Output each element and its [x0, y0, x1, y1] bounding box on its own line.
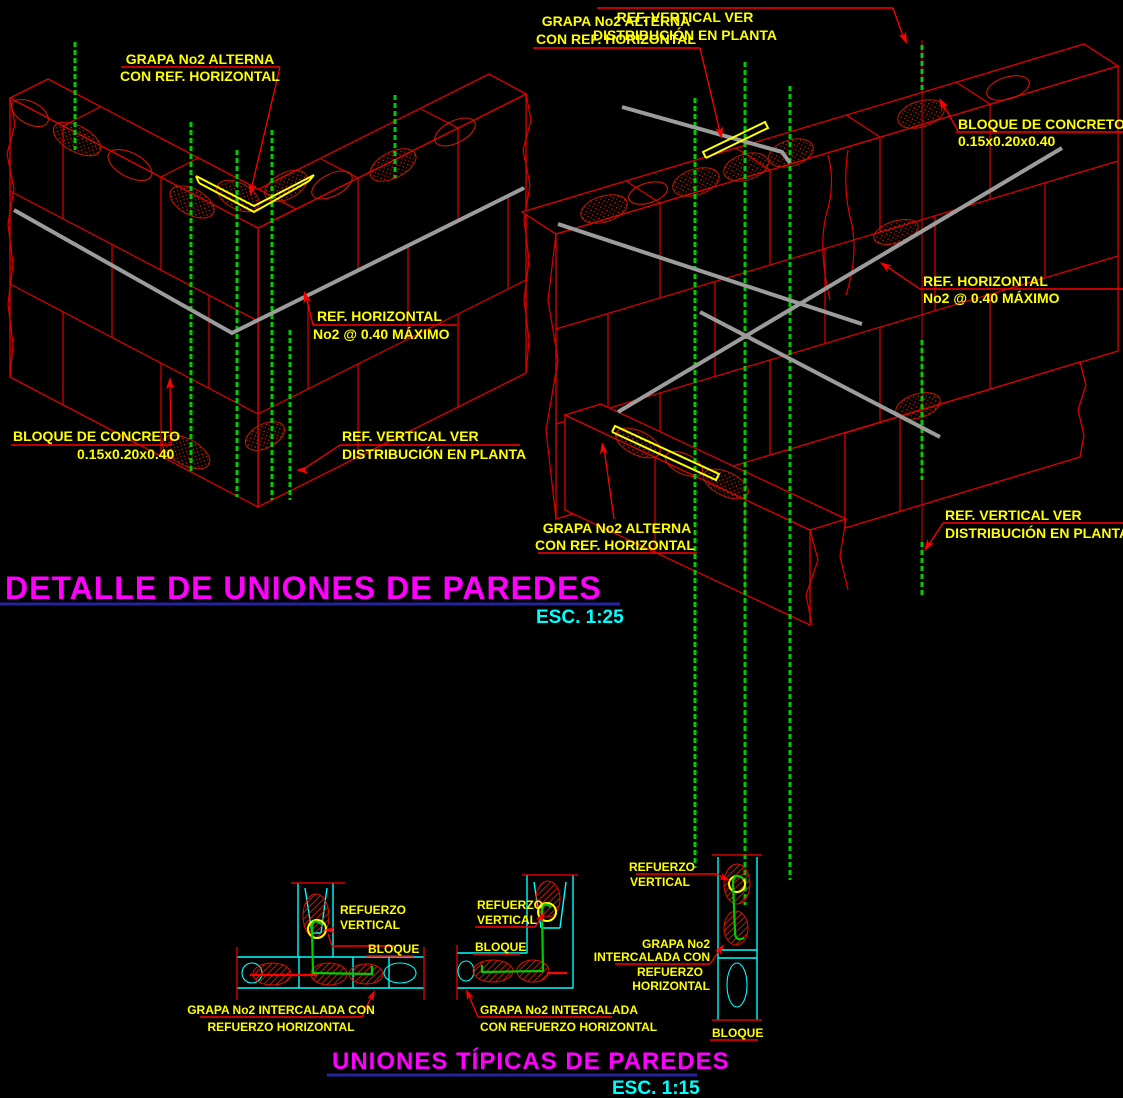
label-grapa-intercalada: GRAPA No2 INTERCALADA [480, 1003, 638, 1017]
label-bloque-concreto: BLOQUE DE CONCRETO [958, 116, 1123, 132]
label-grapa-bottom: GRAPA No2 ALTERNA [543, 520, 692, 536]
label-bloque-concreto: BLOQUE DE CONCRETO [13, 428, 180, 444]
label-ref-vertical-top: REF. VERTICAL VER [617, 9, 754, 25]
label-ref-horizontal: REF. HORIZONTAL [923, 273, 1048, 289]
label-bloque: BLOQUE [712, 1026, 763, 1040]
label-bloque-concreto-2: 0.15x0.20x0.40 [958, 133, 1056, 149]
label-grapa-1: GRAPA No2 [642, 937, 710, 951]
label-grapa-3: REFUERZO [637, 965, 703, 979]
label-refuerzo-vertical: REFUERZO [340, 903, 406, 917]
page-title: DETALLE DE UNIONES DE PAREDES [5, 570, 602, 606]
label-ref-vertical-2: DISTRIBUCIÓN EN PLANTA [342, 445, 526, 462]
plan-tee-union: REFUERZO VERTICAL BLOQUE GRAPA No2 INTER… [187, 883, 424, 1034]
cad-drawing: GRAPA No2 ALTERNA CON REF. HORIZONTAL RE… [0, 0, 1123, 1098]
label-grapa-4: HORIZONTAL [632, 979, 710, 993]
label-refuerzo-vertical: REFUERZO [629, 860, 695, 874]
cad-drawing-canvas: GRAPA No2 ALTERNA CON REF. HORIZONTAL RE… [0, 0, 1123, 1098]
detail-title-block: DETALLE DE UNIONES DE PAREDES ESC. 1:25 [0, 570, 624, 628]
scale-text: ESC. 1:15 [612, 1078, 700, 1098]
label-grapa-bottom-2: CON REF. HORIZONTAL [535, 537, 695, 553]
section-title: UNIONES TÍPICAS DE PAREDES [332, 1047, 730, 1075]
label-bloque-concreto-2: 0.15x0.20x0.40 [77, 446, 175, 462]
label-refuerzo-vertical: REFUERZO [477, 898, 543, 912]
label-grapa-intercalada: GRAPA No2 INTERCALADA CON [187, 1003, 375, 1017]
corner-union-detail: GRAPA No2 ALTERNA CON REF. HORIZONTAL RE… [7, 42, 531, 507]
label-grapa-alterna-2: CON REF. HORIZONTAL [120, 68, 280, 84]
label-grapa-intercalada-2: CON REFUERZO HORIZONTAL [480, 1020, 657, 1034]
label-ref-vertical-top-2: DISTRIBUCIÓN EN PLANTA [593, 26, 777, 43]
label-refuerzo-vertical-2: VERTICAL [340, 918, 400, 932]
label-ref-vertical-bottom-2: DISTRIBUCIÓN EN PLANTA [945, 524, 1123, 541]
label-ref-horizontal-2: No2 @ 0.40 MÁXIMO [923, 290, 1060, 306]
label-ref-horizontal: REF. HORIZONTAL [317, 308, 442, 324]
label-refuerzo-vertical-2: VERTICAL [477, 913, 537, 927]
label-grapa-intercalada-2: REFUERZO HORIZONTAL [207, 1020, 354, 1034]
tee-union-detail: GRAPA No2 ALTERNA CON REF. HORIZONTAL RE… [522, 8, 1123, 905]
label-bloque: BLOQUE [368, 942, 419, 956]
label-bloque: BLOQUE [475, 940, 526, 954]
label-grapa-alterna: GRAPA No2 ALTERNA [126, 51, 275, 67]
scale-text: ESC. 1:25 [536, 607, 624, 628]
label-ref-vertical-bottom: REF. VERTICAL VER [945, 507, 1082, 523]
label-ref-vertical: REF. VERTICAL VER [342, 428, 479, 444]
typical-title-block: UNIONES TÍPICAS DE PAREDES ESC. 1:15 [327, 1047, 730, 1098]
label-grapa-2: INTERCALADA CON [594, 950, 710, 964]
label-refuerzo-vertical-2: VERTICAL [630, 875, 690, 889]
label-ref-horizontal-2: No2 @ 0.40 MÁXIMO [313, 326, 450, 342]
